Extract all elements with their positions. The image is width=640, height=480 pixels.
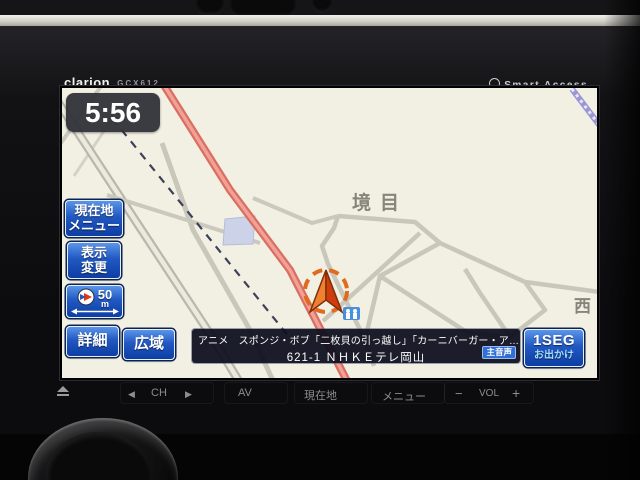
model-number: GCX612	[117, 79, 160, 88]
volume-up-button[interactable]: +	[512, 385, 520, 401]
eject-icon-bar	[57, 394, 69, 396]
vent-shape	[196, 0, 224, 15]
knob-inner	[46, 432, 150, 480]
eject-button[interactable]	[56, 386, 70, 398]
volume-down-button[interactable]: −	[455, 386, 463, 401]
ch-down-button[interactable]: ◀	[128, 389, 135, 400]
scale-unit: m	[98, 302, 112, 307]
audio-mode-badge: 主音声	[482, 346, 516, 359]
scale-width-arrow-icon	[71, 308, 119, 315]
dashboard-top	[0, 0, 640, 16]
zoom-wide-button[interactable]: 広域	[123, 329, 175, 360]
menu-button[interactable]: メニュー	[382, 388, 426, 404]
car-dashboard-photo: clarionGCX612 Smart Access	[0, 0, 640, 480]
program-title: アニメ スポンジ・ボブ「二枚貝の引っ越し」「カーニバーガー・ア…	[192, 329, 520, 347]
tv-program-info-bar: アニメ スポンジ・ボブ「二枚貝の引っ越し」「カーニバーガー・ア… 621-1 Ｎ…	[192, 329, 520, 363]
channel-info: 621-1 ＮＨＫＥテレ岡山	[192, 347, 520, 365]
place-label: 境目	[352, 188, 408, 215]
button-label: 表示	[68, 246, 120, 261]
button-label: メニュー	[66, 219, 122, 234]
current-position-button[interactable]: 現在地	[304, 387, 337, 403]
eject-icon	[57, 386, 69, 392]
pedestrian-crossing-icon	[343, 307, 360, 320]
ch-up-button[interactable]: ▶	[185, 389, 192, 400]
display-change-button[interactable]: 表示 変更	[67, 242, 121, 279]
vent-shape	[312, 0, 332, 13]
oneseg-odekake-button[interactable]: 1SEG お出かけ	[524, 329, 584, 367]
oneseg-label: 1SEG	[525, 332, 583, 349]
current-location-menu-button[interactable]: 現在地 メニュー	[65, 200, 123, 237]
odekake-label: お出かけ	[525, 349, 583, 362]
button-label: 現在地	[66, 204, 122, 219]
map-scale-button[interactable]: 50 m	[66, 285, 123, 318]
compass-icon	[77, 288, 95, 306]
volume-label: VOL	[479, 388, 499, 399]
av-button[interactable]: AV	[238, 387, 252, 399]
av-key-outline	[224, 382, 288, 404]
dashboard-trim-strip	[0, 15, 640, 26]
button-label: 変更	[68, 261, 120, 276]
ch-label: CH	[151, 387, 167, 399]
edge-place-label: 西	[574, 292, 591, 317]
navigation-screen[interactable]: 境目 西 5:56 現在地 メニュー 表示 変更 50 m	[62, 88, 597, 378]
zoom-detail-button[interactable]: 詳細	[66, 326, 119, 357]
clock-display: 5:56	[66, 93, 160, 132]
